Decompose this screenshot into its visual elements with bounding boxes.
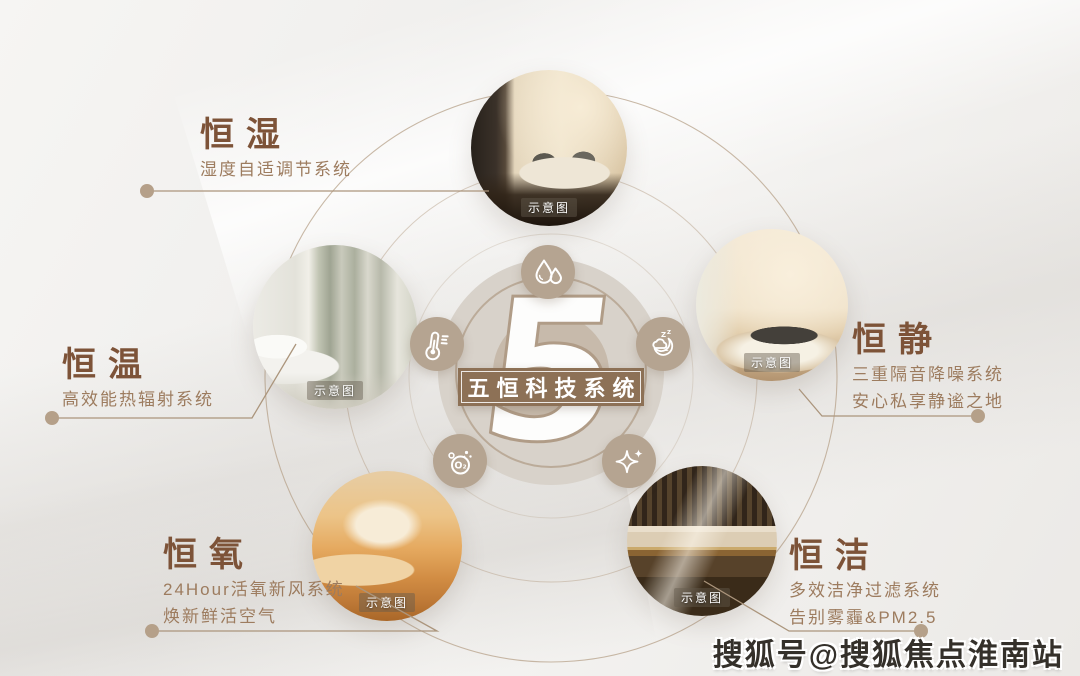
o2-bubbles-icon: O₂	[442, 443, 478, 479]
photo-caption: 示意图	[359, 593, 415, 612]
connector-dot	[45, 411, 59, 425]
temperature-badge	[410, 317, 464, 371]
photo-living-room: 示意图	[471, 70, 627, 226]
feature-desc: 多效洁净过滤系统	[789, 579, 941, 602]
oxygen-badge: O₂	[433, 434, 487, 488]
sparkle-icon	[611, 443, 647, 479]
thermometer-icon	[419, 326, 455, 362]
feature-title: 恒氧	[163, 537, 345, 574]
photo-caption: 示意图	[521, 198, 577, 217]
quiet-badge: Z Z z	[636, 317, 690, 371]
sohu-watermark: 搜狐号@搜狐焦点淮南站	[713, 630, 1064, 674]
feature-desc: 告别雾霾&PM2.5	[789, 606, 941, 629]
sleep-moon-icon: Z Z z	[645, 326, 681, 362]
photo-caption: 示意图	[744, 353, 800, 372]
svg-text:Z: Z	[661, 331, 666, 339]
feature-title: 恒温	[62, 347, 214, 384]
clean-badge	[602, 434, 656, 488]
feature-title: 恒洁	[789, 538, 941, 575]
feature-oxygen: 恒氧 24Hour活氧新风系统 焕新鲜活空气	[163, 537, 345, 628]
photo-bright-bedroom: 示意图	[253, 245, 417, 409]
photo-caption: 示意图	[674, 588, 730, 607]
svg-text:Z: Z	[667, 330, 671, 336]
water-drops-icon	[530, 254, 566, 290]
feature-desc: 24Hour活氧新风系统	[163, 578, 345, 601]
photo-warm-bedroom: 示意图	[696, 229, 848, 381]
center-title-band: 五恒科技系统	[458, 368, 644, 406]
humidity-badge	[521, 245, 575, 299]
feature-temperature: 恒温 高效能热辐射系统	[62, 347, 214, 415]
photo-kitchen: 示意图	[627, 466, 777, 616]
feature-desc: 焕新鲜活空气	[163, 605, 345, 628]
system-title: 五恒科技系统	[460, 371, 641, 403]
feature-title: 恒湿	[200, 117, 352, 154]
feature-desc: 三重隔音降噪系统	[852, 363, 1004, 386]
photo-caption: 示意图	[307, 381, 363, 400]
svg-text:O₂: O₂	[454, 461, 466, 472]
feature-title: 恒静	[852, 322, 1004, 359]
svg-text:z: z	[665, 346, 669, 353]
feature-clean: 恒洁 多效洁净过滤系统 告别雾霾&PM2.5	[789, 538, 941, 629]
feature-humidity: 恒湿 湿度自适调节系统	[200, 117, 352, 185]
connector-dot	[145, 624, 159, 638]
feature-desc: 湿度自适调节系统	[200, 158, 352, 181]
connector-dot	[140, 184, 154, 198]
feature-desc: 高效能热辐射系统	[62, 388, 214, 411]
five-constant-system-infographic: 5 示意图 示意图 示意图 示意图 示意图 五恒科技系统	[0, 0, 1080, 676]
feature-desc: 安心私享静谧之地	[852, 390, 1004, 413]
feature-quiet: 恒静 三重隔音降噪系统 安心私享静谧之地	[852, 322, 1004, 413]
